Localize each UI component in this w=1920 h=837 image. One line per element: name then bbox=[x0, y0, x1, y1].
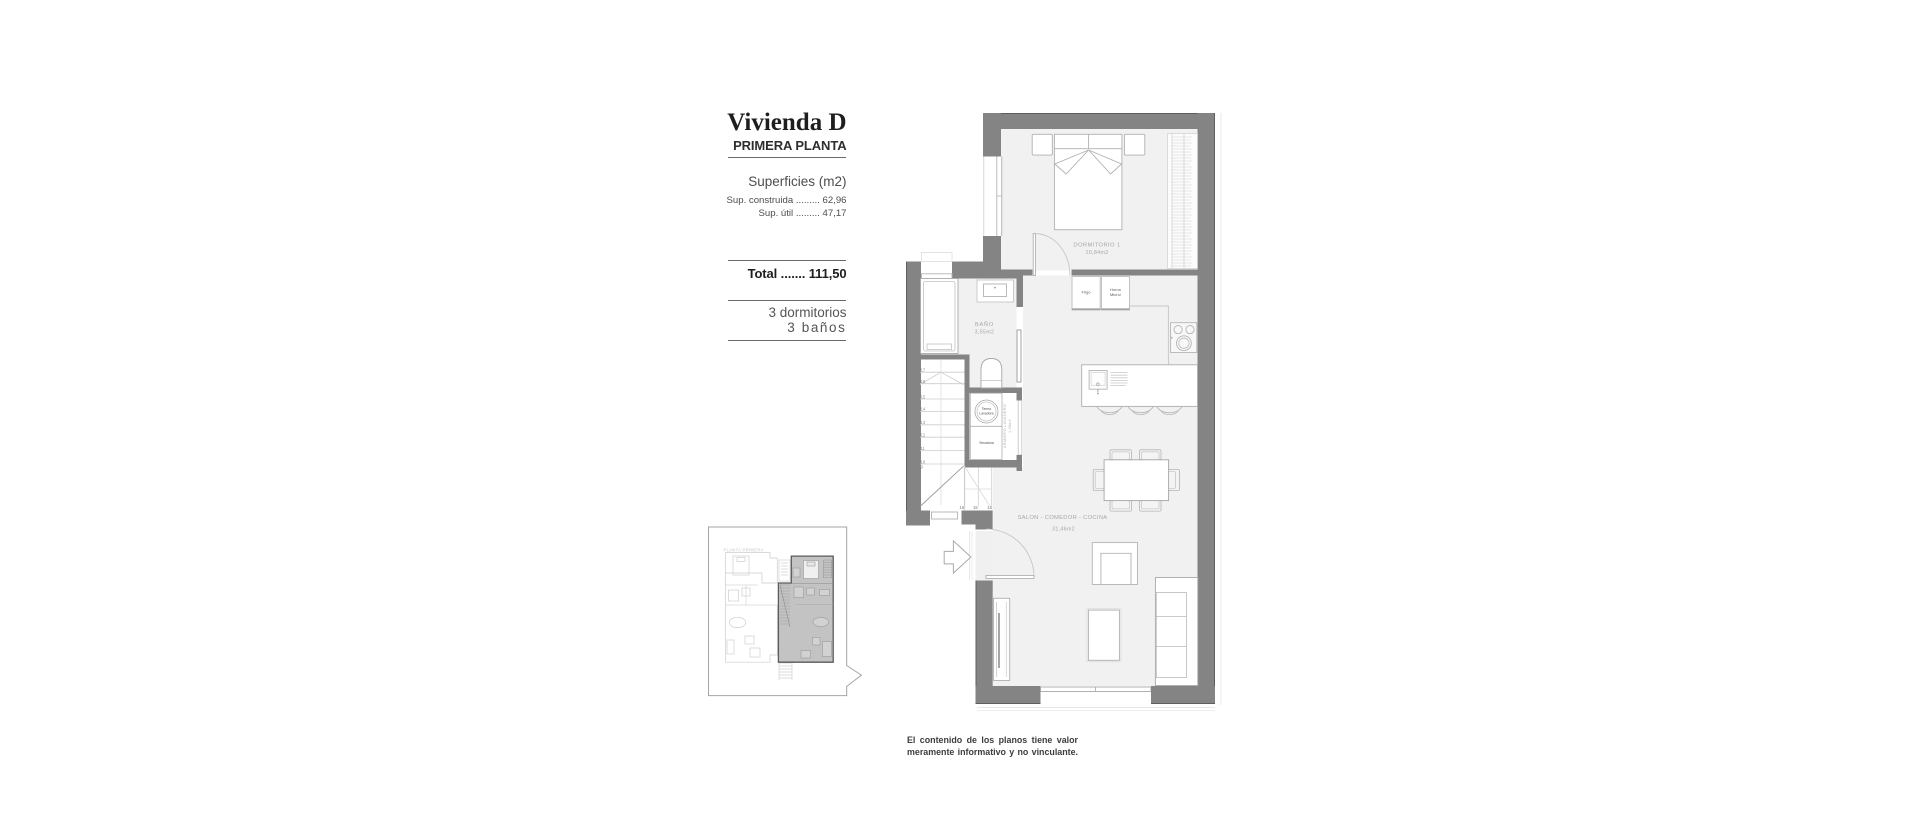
svg-text:Lavadora: Lavadora bbox=[979, 412, 993, 416]
svg-text:Frigo: Frigo bbox=[1081, 290, 1091, 295]
svg-text:17: 17 bbox=[921, 368, 926, 373]
svg-text:16: 16 bbox=[960, 505, 965, 510]
svg-text:Secadora: Secadora bbox=[979, 441, 994, 445]
svg-text:11: 11 bbox=[921, 446, 926, 451]
svg-text:15: 15 bbox=[973, 505, 978, 510]
svg-text:12: 12 bbox=[921, 433, 926, 438]
svg-text:Micro/: Micro/ bbox=[1110, 292, 1122, 297]
svg-text:Termo: Termo bbox=[982, 407, 992, 411]
svg-text:14: 14 bbox=[921, 407, 926, 412]
svg-text:15: 15 bbox=[921, 394, 926, 399]
svg-text:10,84m2: 10,84m2 bbox=[1085, 250, 1108, 256]
svg-text:31,46m2: 31,46m2 bbox=[1052, 527, 1075, 533]
svg-text:13: 13 bbox=[921, 420, 926, 425]
svg-text:SALON - COMEDOR - COCINA: SALON - COMEDOR - COCINA bbox=[1018, 515, 1108, 521]
svg-text:14: 14 bbox=[987, 505, 992, 510]
svg-text:3,55m2: 3,55m2 bbox=[975, 330, 995, 336]
svg-text:1,30m2: 1,30m2 bbox=[1008, 419, 1012, 433]
svg-text:16: 16 bbox=[921, 379, 926, 384]
svg-text:ARMARIO LAVADERO: ARMARIO LAVADERO bbox=[1002, 404, 1007, 448]
svg-text:PLANTA PRIMERA: PLANTA PRIMERA bbox=[724, 548, 764, 553]
svg-text:BAÑO: BAÑO bbox=[975, 321, 994, 328]
svg-text:DORMITORIO 1: DORMITORIO 1 bbox=[1073, 243, 1120, 249]
svg-text:9: 9 bbox=[921, 465, 924, 470]
